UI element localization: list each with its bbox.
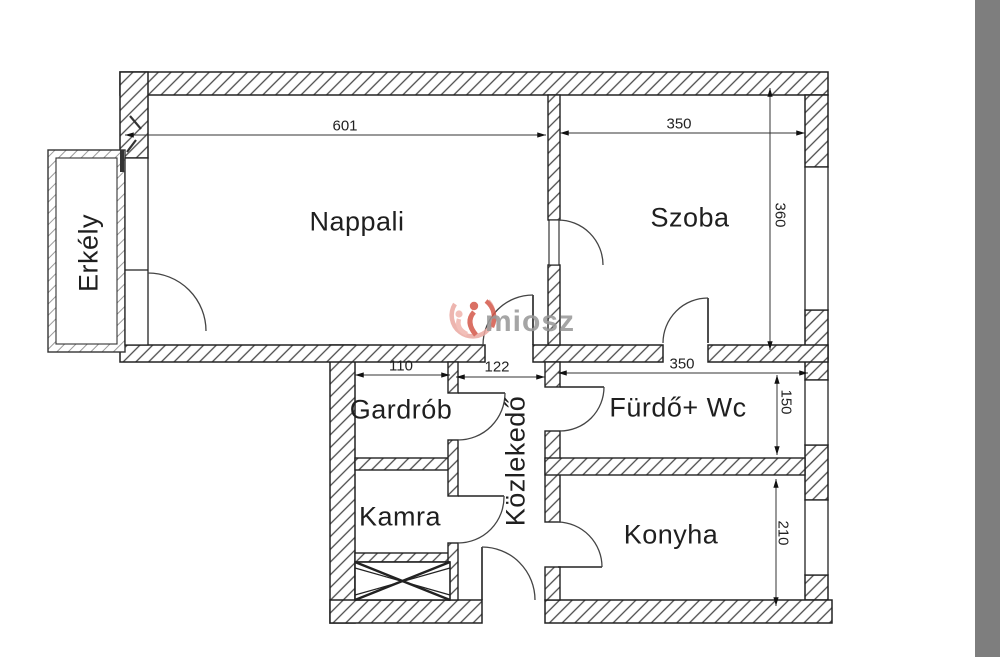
balcony-window	[125, 158, 148, 345]
room-label-erkely: Erkély	[74, 214, 105, 292]
szoba-door-arc	[558, 220, 603, 265]
room-label-konyha: Konyha	[624, 520, 719, 551]
room-label-kamra: Kamra	[359, 502, 441, 533]
balcony-door-arc	[148, 273, 206, 331]
room-label-kozlekedo: Közlekedő	[501, 396, 532, 527]
konyha-door-arc	[558, 522, 602, 567]
shaft-x-box	[355, 562, 450, 600]
watermark-text: miosz	[485, 305, 575, 339]
room-label-nappali: Nappali	[309, 207, 404, 238]
screen-edge-bar	[975, 0, 1000, 657]
furdo-window	[805, 380, 828, 445]
dim-szoba-depth: 360	[772, 202, 789, 227]
gardrob-door-arc	[458, 393, 505, 440]
room-label-furdo-wc: Fürdő+ Wc	[609, 393, 746, 424]
szoba-furdo-door-arc	[663, 298, 708, 343]
dim-kozlekedo-width: 122	[484, 359, 509, 376]
dim-gardrob-width: 110	[389, 358, 413, 375]
outer-walls	[120, 72, 832, 623]
dim-konyha-depth: 210	[775, 520, 792, 545]
konyha-window	[805, 500, 828, 575]
room-label-gardrob: Gardrób	[350, 395, 453, 426]
room-label-szoba: Szoba	[650, 203, 729, 234]
szoba-window	[805, 167, 828, 310]
furdo-door-arc	[560, 387, 604, 431]
dim-szoba-width: 350	[666, 116, 691, 133]
floorplan-page: Nappali Szoba Erkély Gardrób Kamra Közle…	[0, 0, 1000, 657]
entrance-door-arc	[482, 547, 535, 600]
dim-nappali-width: 601	[332, 118, 357, 135]
dim-furdo-width: 350	[669, 356, 694, 373]
kamra-door-arc	[458, 496, 504, 543]
dim-furdo-depth: 150	[778, 389, 795, 414]
